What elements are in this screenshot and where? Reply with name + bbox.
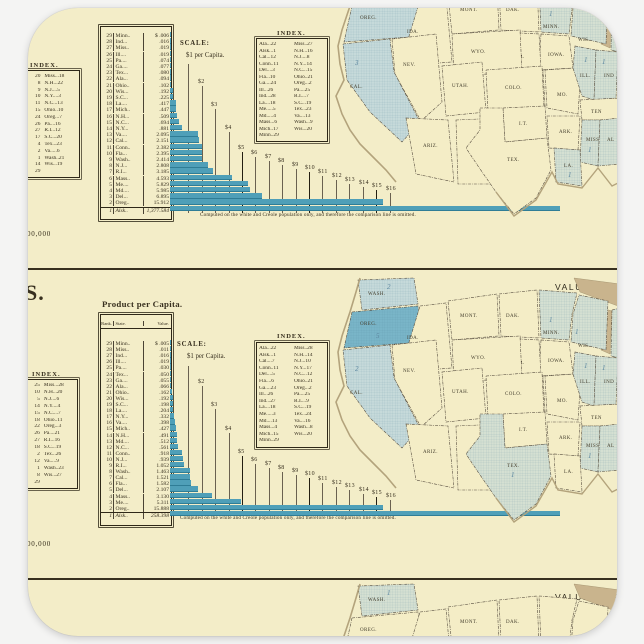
index-entry: 9 bbox=[28, 88, 42, 93]
index-row: Cal....7N.J...10 bbox=[257, 359, 327, 364]
index-entry: R.I...16 bbox=[42, 438, 74, 443]
index-entry: N.Y....3 bbox=[42, 94, 75, 99]
table-cell: 2.808 bbox=[144, 163, 172, 169]
index-row: Mass...6Wash...9 bbox=[257, 120, 327, 125]
table-cell: 27 bbox=[101, 45, 114, 51]
gridline-label-2: $2 bbox=[198, 379, 205, 385]
table-cell: Ala... bbox=[114, 76, 144, 82]
table-cell: R.I... bbox=[114, 169, 144, 175]
table-cell: Alsk.. bbox=[114, 513, 144, 519]
state-label-ill: ILL. bbox=[580, 74, 591, 79]
table-cell: 1,377.584 bbox=[144, 208, 172, 214]
index-row: Fla....6Ohio..21 bbox=[257, 379, 327, 384]
index-row: Minn..29 bbox=[257, 133, 327, 138]
state-label-wyo: WYO. bbox=[471, 50, 486, 55]
table-cell: .192 bbox=[144, 89, 172, 95]
state-label-mo: MO. bbox=[557, 399, 568, 404]
index-entry: Ill...26 bbox=[257, 88, 292, 93]
index-entry: N.J....6 bbox=[42, 397, 74, 402]
state-label-mont: MONT. bbox=[460, 8, 478, 13]
panel2-heading: Product per Capita. bbox=[102, 299, 182, 309]
state-label-ten: TEN bbox=[591, 110, 602, 115]
table-cell: 28 bbox=[101, 39, 114, 45]
gridline-label-2: $5 bbox=[238, 449, 245, 455]
table-cell: 15.912 bbox=[144, 200, 172, 206]
index-entry: Pa....25 bbox=[292, 88, 327, 93]
index-entry: 14 bbox=[28, 162, 42, 167]
index-row: 20Miss...18 bbox=[28, 74, 79, 79]
bar-1 bbox=[170, 181, 248, 186]
state-label-tex: TEX. bbox=[507, 158, 520, 163]
index-entry: Wash..21 bbox=[42, 156, 75, 161]
index-entry: 2 bbox=[28, 452, 42, 457]
bar-1 bbox=[170, 32, 171, 37]
bar-1 bbox=[170, 162, 208, 167]
table-cell: 29 bbox=[101, 33, 114, 39]
table-cell: 2.382 bbox=[144, 145, 172, 151]
state-label-minn: MINN. bbox=[543, 331, 560, 336]
index-entry: Oreg...3 bbox=[42, 424, 74, 429]
index-entry: 24 bbox=[28, 115, 42, 120]
index-row: Fla...10Ohio..21 bbox=[257, 75, 327, 80]
table-cell: N.H... bbox=[114, 114, 144, 120]
index-entry: 11 bbox=[28, 101, 42, 106]
table-cell: 4 bbox=[101, 188, 114, 194]
index-box-main-2: Ala...22Miss..28Alsk...1N.H...14Cal....7… bbox=[256, 342, 328, 448]
scale-value-1: $1 per Capita. bbox=[186, 52, 224, 59]
state-label-cal: CAL. bbox=[350, 391, 363, 396]
table-cell: 10 bbox=[101, 151, 114, 157]
bar-2 bbox=[170, 413, 174, 418]
index-entry: 20 bbox=[28, 74, 42, 79]
state-ariz bbox=[406, 424, 454, 488]
table-cell: Ohio.. bbox=[114, 83, 144, 89]
rank-table-1: 29Minn..$ .00628Ind....01627Miss...01926… bbox=[100, 26, 172, 220]
bar-2 bbox=[170, 462, 184, 467]
bar-2 bbox=[170, 450, 182, 455]
index-entry: Ala...22 bbox=[257, 346, 292, 351]
bar-2 bbox=[170, 352, 171, 357]
table-cell: 6.895 bbox=[144, 194, 172, 200]
index-entry: Mass...6 bbox=[257, 120, 292, 125]
bar-1 bbox=[170, 82, 171, 87]
state-label-ind: IND bbox=[604, 380, 614, 385]
rank-table-header-cell: State. bbox=[114, 321, 144, 326]
gridline-label-2: $8 bbox=[278, 465, 285, 471]
index-row: 24Oreg...7 bbox=[28, 115, 79, 120]
state-label-utah: UTAH. bbox=[452, 390, 469, 395]
index-entry: Ind...27 bbox=[257, 399, 292, 404]
state-utah bbox=[442, 62, 486, 116]
index-row: 25Miss...28 bbox=[28, 383, 77, 388]
index-row: Conn..11N.Y...17 bbox=[257, 366, 327, 371]
bar-2 bbox=[170, 383, 171, 388]
table-cell: 4.593 bbox=[144, 176, 172, 182]
table-cell: .019 bbox=[144, 45, 172, 51]
index-entry: 17 bbox=[28, 135, 42, 140]
gridline-label-1: $4 bbox=[225, 125, 232, 131]
index-entry: Ill...26 bbox=[257, 392, 292, 397]
index-entry: N.J....8 bbox=[292, 55, 327, 60]
table-cell: 5.829 bbox=[144, 182, 172, 188]
state-label-wash: WASH. bbox=[368, 598, 385, 603]
table-cell: .094 bbox=[144, 76, 172, 82]
index-entry: Mich..15 bbox=[257, 432, 292, 437]
index-row: 14N.Y....4 bbox=[28, 404, 77, 409]
bar-2 bbox=[170, 419, 175, 424]
index-entry: R.I....7 bbox=[292, 94, 327, 99]
bar-1 bbox=[170, 63, 171, 68]
index-entry: Miss..28 bbox=[292, 346, 327, 351]
index-entry: Pa....21 bbox=[42, 431, 74, 436]
state-label-wash: WASH. bbox=[368, 292, 385, 297]
index-row: Ill...26Pa....25 bbox=[257, 392, 327, 397]
state-number-ind: 1 bbox=[602, 364, 606, 372]
index-entry: N.J....5 bbox=[42, 88, 75, 93]
index-row: Del....3N.C...15 bbox=[257, 68, 327, 73]
bar-1 bbox=[170, 51, 171, 56]
index-box-left-2: 25Miss...2810N.H...205N.J....614N.Y....4… bbox=[28, 379, 78, 489]
index-entry: La....18 bbox=[257, 405, 292, 410]
index-row: Minn..29 bbox=[257, 438, 327, 443]
panel-divider-1 bbox=[28, 268, 617, 270]
index-row: 8N.H...22 bbox=[28, 81, 79, 86]
index-entry: N.J...10 bbox=[292, 359, 327, 364]
state-label-ida: IDA. bbox=[407, 336, 419, 341]
index-entry: 27 bbox=[28, 128, 42, 133]
table-cell: N.C... bbox=[114, 120, 144, 126]
table-cell: .102 bbox=[144, 83, 172, 89]
table-cell: .417 bbox=[144, 101, 172, 107]
index-entry: Ga....23 bbox=[257, 386, 292, 391]
state-label-wis: WIS. bbox=[578, 38, 590, 43]
table-cell: Minn.. bbox=[114, 33, 144, 39]
state-ten bbox=[580, 404, 617, 426]
gridline-label-1: $9 bbox=[292, 162, 299, 168]
state-label-iowa: IOWA. bbox=[548, 53, 564, 58]
bar-1 bbox=[170, 57, 171, 62]
index-entry: Miss...18 bbox=[42, 74, 75, 79]
index-entry bbox=[42, 169, 75, 174]
index-row: Ala...22Miss..27 bbox=[257, 42, 327, 47]
state-shading-miss bbox=[580, 120, 600, 166]
bar-1 bbox=[170, 175, 232, 180]
table-cell: 2.151 bbox=[144, 138, 172, 144]
table-cell: Mich.. bbox=[114, 107, 144, 113]
gridline-label-2: $11 bbox=[318, 476, 328, 482]
table-cell: 12 bbox=[101, 138, 114, 144]
index-entry: S.C...20 bbox=[42, 135, 75, 140]
state-utah bbox=[442, 368, 486, 422]
state-label-oreg: OREG. bbox=[360, 322, 377, 327]
index-row: Alsk...1N.H...16 bbox=[257, 49, 327, 54]
state-label-mont: MONT. bbox=[460, 620, 478, 625]
state-label-mo: MO. bbox=[557, 93, 568, 98]
bar-2 bbox=[170, 438, 177, 443]
index-row: Me.....5Tex...23 bbox=[257, 107, 327, 112]
table-cell: Fla... bbox=[114, 151, 144, 157]
state-label-utah: UTAH. bbox=[452, 84, 469, 89]
state-shading-mich bbox=[611, 8, 617, 52]
index-row: Ill...26Pa....25 bbox=[257, 88, 327, 93]
index-entry: Ohio..10 bbox=[42, 108, 75, 113]
index-entry: Wis...20 bbox=[292, 432, 327, 437]
state-number-oreg: 5 bbox=[376, 332, 380, 340]
table-cell: 2.095 bbox=[144, 132, 172, 138]
table-cell: .881 bbox=[144, 126, 172, 132]
state-shading-miss bbox=[580, 426, 600, 472]
table-cell: Md.... bbox=[114, 188, 144, 194]
index-row: 11N.C...13 bbox=[28, 101, 79, 106]
state-shading-mich bbox=[611, 308, 617, 358]
index-entry: Tex...26 bbox=[42, 452, 74, 457]
table-cell: 9 bbox=[101, 157, 114, 163]
state-label-ariz: ARIZ. bbox=[423, 144, 438, 149]
atlas-sticker: INDEX. SCALE: $1 per Capita. INDEX. Comp… bbox=[28, 8, 617, 636]
state-number-wash: 1 bbox=[387, 589, 391, 597]
table-cell: .509 bbox=[144, 114, 172, 120]
index-entry: Wis...20 bbox=[292, 127, 327, 132]
index-entry: 2 bbox=[28, 149, 42, 154]
index-row: Ind...28R.I....7 bbox=[257, 94, 327, 99]
table-cell: Me.... bbox=[114, 182, 144, 188]
bar-1 bbox=[170, 88, 173, 93]
table-cell: .080 bbox=[144, 70, 172, 76]
state-number-cal: 2 bbox=[355, 365, 359, 373]
gridline-label-1: $8 bbox=[278, 158, 285, 164]
us-map-2: MONT.DAK.MINN.1WIS.1IOWA.NEBR.KANS.MO.IL… bbox=[330, 278, 617, 530]
index-entry: 27 bbox=[28, 438, 42, 443]
index-entry: Cal...12 bbox=[257, 55, 292, 60]
bar-1 bbox=[170, 100, 176, 105]
index-row: 2Tex...26 bbox=[28, 452, 77, 457]
index-entry: Me.....3 bbox=[257, 412, 292, 417]
state-label-it: I.T. bbox=[519, 428, 527, 433]
state-wis bbox=[571, 601, 608, 636]
index-entry: Ala...22 bbox=[257, 42, 292, 47]
table-cell: Ill.... bbox=[114, 52, 144, 58]
table-cell: Miss.. bbox=[114, 45, 144, 51]
left-index-title-1: INDEX. bbox=[30, 62, 59, 69]
index-entry: N.Y....4 bbox=[42, 404, 74, 409]
table-cell: 23 bbox=[101, 70, 114, 76]
index-entry: 5 bbox=[28, 397, 42, 402]
state-label-iowa: IOWA. bbox=[548, 359, 564, 364]
index-row: Ala...22Miss..28 bbox=[257, 346, 327, 351]
table-cell: 17 bbox=[101, 107, 114, 113]
state-number-minn: 1 bbox=[549, 316, 553, 324]
rank-table-header: Rank.State.Value. bbox=[101, 318, 171, 329]
table-cell: 1 bbox=[101, 513, 114, 519]
index-row: 29 bbox=[28, 169, 79, 174]
index-row: Ind...27R.I....9 bbox=[257, 399, 327, 404]
table-cell: Oreg.. bbox=[114, 200, 144, 206]
bar-1 bbox=[170, 75, 171, 80]
index-row: 10N.Y....3 bbox=[28, 94, 79, 99]
table-cell: 2 bbox=[101, 200, 114, 206]
gridline-label-1: $7 bbox=[265, 154, 272, 160]
state-label-tex: TEX. bbox=[507, 464, 520, 469]
index-entry: 12 bbox=[28, 459, 42, 464]
scale-label-1: SCALE: bbox=[180, 40, 210, 47]
state-ten bbox=[580, 98, 617, 120]
index-row: 4Tex...23 bbox=[28, 142, 79, 147]
table-cell: Va.... bbox=[114, 132, 144, 138]
state-label-ala: AL bbox=[607, 444, 614, 449]
bar-1 bbox=[170, 150, 202, 155]
bar-2 bbox=[170, 389, 172, 394]
index-entry: 25 bbox=[28, 383, 42, 388]
state-mo bbox=[545, 68, 580, 114]
index-row: Ga....24Oreg...2 bbox=[257, 81, 327, 86]
table-row: 1Alsk..1,377.584 bbox=[101, 207, 171, 214]
bar-2 bbox=[170, 377, 171, 382]
bar-1 bbox=[170, 187, 250, 192]
bar-2 bbox=[170, 358, 171, 363]
table-cell: 14 bbox=[101, 126, 114, 132]
index-entry: Wis...27 bbox=[42, 473, 74, 478]
state-mich bbox=[611, 614, 617, 636]
gridline-label-2: $7 bbox=[265, 461, 272, 467]
table-cell: .447 bbox=[144, 107, 172, 113]
index-row: 1Wash..23 bbox=[28, 466, 77, 471]
index-entry: S.C...19 bbox=[292, 101, 327, 106]
state-label-miss: MISS. bbox=[586, 444, 601, 449]
index-row: 26Pa....21 bbox=[28, 431, 77, 436]
bar-1 bbox=[170, 94, 173, 99]
table-cell: 5 bbox=[101, 182, 114, 188]
index-entry: Ohio..21 bbox=[292, 75, 327, 80]
index-entry: Conn..11 bbox=[257, 366, 292, 371]
state-label-dak: DAK. bbox=[506, 314, 520, 319]
state-label-wyo: WYO. bbox=[471, 356, 486, 361]
state-label-dak: DAK. bbox=[506, 620, 520, 625]
table-cell: Ga.... bbox=[114, 64, 144, 70]
rank-table-header-cell: Value. bbox=[144, 321, 172, 326]
bar-2 bbox=[170, 468, 190, 473]
index-entry: Oreg...2 bbox=[292, 81, 327, 86]
index-entry: 14 bbox=[28, 404, 42, 409]
table-cell: 11 bbox=[101, 145, 114, 151]
index-entry: 8 bbox=[28, 473, 42, 478]
state-label-minn: MINN. bbox=[543, 25, 560, 30]
panel-divider-2 bbox=[28, 578, 617, 580]
index-entry: N.H...14 bbox=[292, 353, 327, 358]
index-entry: 4 bbox=[28, 142, 42, 147]
gridline-label-1: $6 bbox=[251, 150, 258, 156]
state-label-it: I.T. bbox=[519, 122, 527, 127]
bar-1 bbox=[170, 131, 198, 136]
index-entry: Mich..17 bbox=[257, 127, 292, 132]
index-row: 9N.J....5 bbox=[28, 88, 79, 93]
table-cell: Wis... bbox=[114, 89, 144, 95]
index-row: 14Wis...19 bbox=[28, 162, 79, 167]
state-label-oreg: OREG. bbox=[360, 628, 377, 633]
bar-2 bbox=[170, 499, 241, 504]
index-row: 27R.I...12 bbox=[28, 128, 79, 133]
table-cell: 6 bbox=[101, 176, 114, 182]
state-label-nev: NEV. bbox=[403, 63, 415, 68]
table-cell: 25 bbox=[101, 58, 114, 64]
table-cell: Ind... bbox=[114, 39, 144, 45]
index-entry: N.H...20 bbox=[42, 390, 74, 395]
table-cell: 8 bbox=[101, 163, 114, 169]
index-entry: Md.....4 bbox=[257, 114, 292, 119]
index-row: 12Va.....9 bbox=[28, 459, 77, 464]
table-cell: 2.414 bbox=[144, 157, 172, 163]
index-row: Md....13Va....16 bbox=[257, 419, 327, 424]
bar-2 bbox=[170, 480, 191, 485]
bar-2 bbox=[170, 474, 190, 479]
state-label-nev: NEV. bbox=[403, 369, 415, 374]
index-entry: 10 bbox=[28, 390, 42, 395]
bar-1 bbox=[170, 106, 176, 111]
table-cell: 19 bbox=[101, 95, 114, 101]
state-label-ten: TEN bbox=[591, 416, 602, 421]
index-entry: Tex...23 bbox=[292, 107, 327, 112]
table-cell: N.Y... bbox=[114, 126, 144, 132]
index-entry: Mass...4 bbox=[257, 425, 292, 430]
index-entry: N.C...15 bbox=[292, 68, 327, 73]
index-entry: Pa....16 bbox=[42, 122, 75, 127]
partial-number-1: 00,000 bbox=[28, 230, 51, 238]
gridline-label-1: $2 bbox=[198, 79, 205, 85]
index-entry: 1 bbox=[28, 156, 42, 161]
index-entry: N.Y...14 bbox=[292, 62, 327, 67]
index-entry bbox=[292, 133, 327, 138]
bar-2 bbox=[170, 395, 173, 400]
state-number-ind: 1 bbox=[602, 58, 606, 66]
bar-1 bbox=[170, 38, 171, 43]
state-number-ill: 1 bbox=[584, 362, 588, 370]
index-entry: 8 bbox=[28, 81, 42, 86]
state-label-cal: CAL. bbox=[350, 85, 363, 90]
table-cell: .225 bbox=[144, 95, 172, 101]
index-entry: 10 bbox=[28, 94, 42, 99]
index-row: 15N.C....7 bbox=[28, 411, 77, 416]
gridline-label-1: $5 bbox=[238, 145, 245, 151]
index-entry: Oreg...7 bbox=[42, 115, 75, 120]
index-entry: Md....13 bbox=[257, 419, 292, 424]
bar-2 bbox=[170, 493, 212, 498]
bar-1 bbox=[170, 156, 202, 161]
table-cell: 5.985 bbox=[144, 188, 172, 194]
bar-2 bbox=[170, 371, 171, 376]
index-entry: Del....3 bbox=[257, 68, 292, 73]
state-label-la: LA. bbox=[564, 164, 573, 169]
state-label-ala: AL bbox=[607, 138, 614, 143]
table-cell: 24 bbox=[101, 64, 114, 70]
index-box-left-1: 20Miss...188N.H...229N.J....510N.Y....31… bbox=[28, 70, 80, 178]
index-entry: N.C...12 bbox=[292, 372, 327, 377]
state-number-cal: 3 bbox=[354, 59, 359, 67]
table-cell: Mass.. bbox=[114, 176, 144, 182]
table-cell: 3.185 bbox=[144, 169, 172, 175]
state-label-colo: COLO. bbox=[505, 392, 522, 397]
table-cell: 2.395 bbox=[144, 151, 172, 157]
index-row: 8Wis...27 bbox=[28, 473, 77, 478]
table-cell: 1 bbox=[101, 208, 114, 214]
table-cell: 26 bbox=[101, 52, 114, 58]
index-entry: N.H...22 bbox=[42, 81, 75, 86]
index-entry: Wis...19 bbox=[42, 162, 75, 167]
rank-table-header-cell: Rank. bbox=[101, 321, 114, 326]
index-row: Mich..17Wis...20 bbox=[257, 127, 327, 132]
bar-2 bbox=[170, 456, 183, 461]
gridline-label-1: $10 bbox=[305, 165, 315, 171]
state-label-dak: DAK. bbox=[506, 8, 520, 13]
state-label-ariz: ARIZ. bbox=[423, 450, 438, 455]
